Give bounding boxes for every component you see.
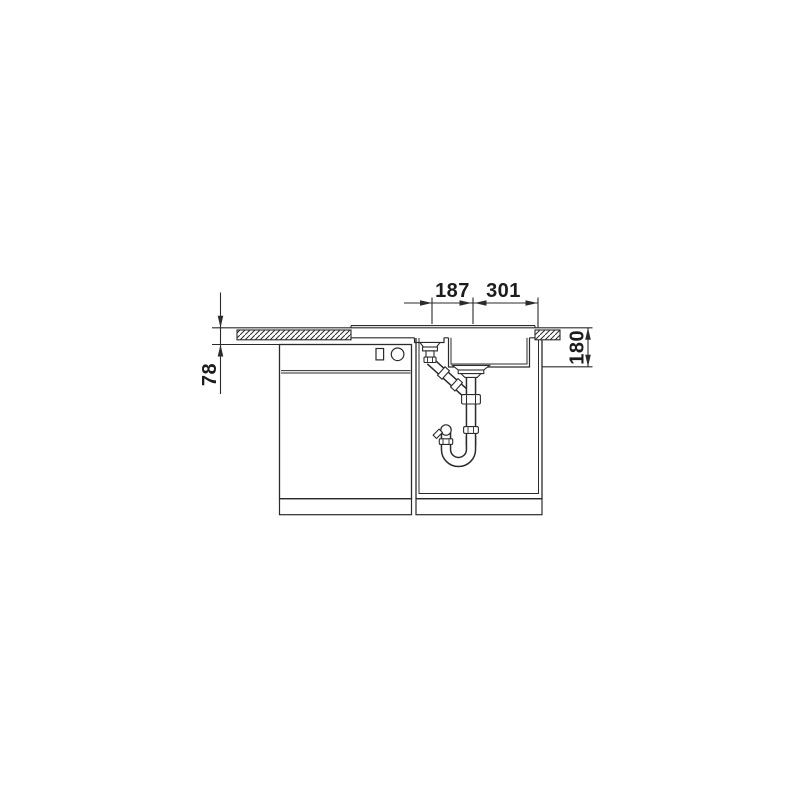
drain-trap-assembly	[420, 343, 490, 463]
trap-arm-nut	[439, 439, 452, 445]
arrowhead	[526, 300, 538, 305]
left-cabinet-rail-line	[281, 371, 411, 373]
worktop-hatch-right	[535, 330, 560, 340]
appliance-circle-icon	[391, 348, 404, 361]
arrowhead	[475, 300, 487, 305]
appliance-rect-icon	[376, 349, 384, 360]
base-cabinets	[212, 338, 542, 515]
right-cabinet-plinth	[416, 499, 542, 515]
left-cabinet-outline	[280, 345, 412, 499]
sink-dimension-diagram-page: 187 301 78 180	[0, 0, 800, 800]
arrowhead	[218, 345, 224, 357]
worktop-section	[212, 326, 593, 340]
small-bowl-strainer	[420, 343, 440, 363]
arrowhead	[420, 300, 432, 305]
sink-dimension-diagram: 187 301 78 180	[0, 0, 800, 800]
left-cabinet-plinth	[280, 499, 412, 515]
coupling-nut-lower	[464, 427, 479, 434]
main-bowl-strainer	[453, 365, 490, 377]
dim-label-187: 187	[435, 280, 470, 302]
dim-label-301: 301	[486, 280, 521, 302]
dim-label-180: 180	[567, 330, 589, 365]
worktop-hatch-left	[237, 330, 351, 340]
dim-label-78: 78	[199, 363, 221, 386]
main-bowl-inner-wall	[451, 338, 527, 364]
coupling-nut-upper	[462, 395, 481, 404]
main-bowl-outline	[449, 338, 530, 367]
trap-arm-cap	[441, 425, 451, 435]
arrowhead	[218, 316, 224, 328]
